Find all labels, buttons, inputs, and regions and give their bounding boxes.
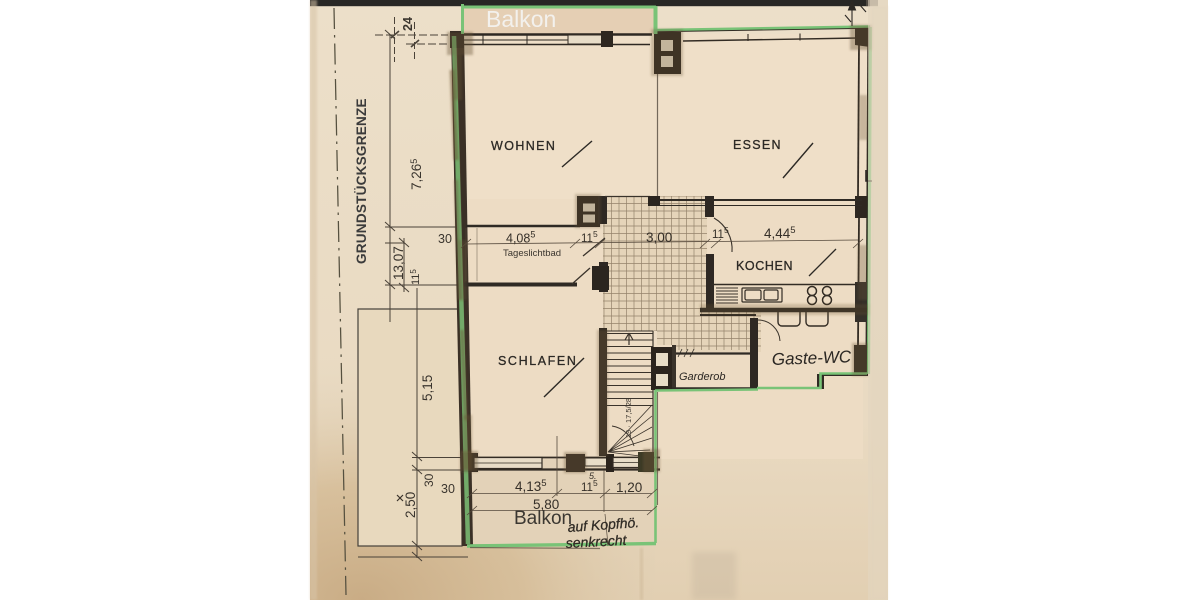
svg-text:Gaste-WC: Gaste-WC xyxy=(771,347,852,369)
svg-text:5,15: 5,15 xyxy=(420,375,435,401)
svg-text:13,07: 13,07 xyxy=(391,246,406,280)
svg-text:Garderob: Garderob xyxy=(679,371,725,383)
svg-text:KOCHEN: KOCHEN xyxy=(736,259,793,273)
svg-text:Tageslichtbad: Tageslichtbad xyxy=(503,248,561,259)
svg-text:24: 24 xyxy=(401,17,415,31)
svg-text:WOHNEN: WOHNEN xyxy=(491,139,556,153)
svg-text:SCHLAFEN: SCHLAFEN xyxy=(498,354,577,368)
svg-text:ESSEN: ESSEN xyxy=(733,138,782,152)
svg-text:1,20: 1,20 xyxy=(616,480,642,495)
svg-text:3,00: 3,00 xyxy=(646,230,672,245)
svg-text:30: 30 xyxy=(441,482,455,496)
svg-text:30: 30 xyxy=(438,232,452,246)
svg-text:2,50: 2,50 xyxy=(403,492,418,518)
svg-text:Balkon: Balkon xyxy=(486,6,556,32)
svg-text:19 · 17,5/28: 19 · 17,5/28 xyxy=(624,398,633,438)
svg-text:30: 30 xyxy=(422,473,436,487)
svg-text:GRUNDSTÜCKSGRENZE: GRUNDSTÜCKSGRENZE xyxy=(354,98,369,264)
svg-text:senkrecht: senkrecht xyxy=(565,532,628,551)
svg-text:Balkon: Balkon xyxy=(514,508,572,529)
